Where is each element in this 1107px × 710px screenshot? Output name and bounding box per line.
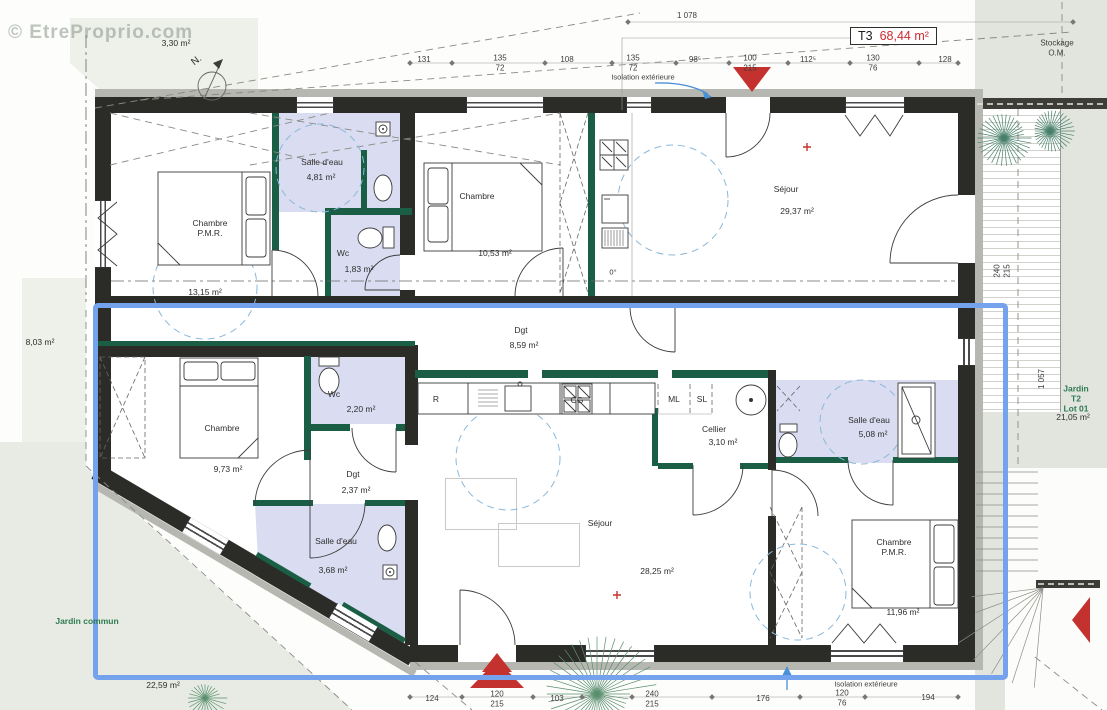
dim-top-0: 131: [417, 55, 430, 65]
appliance-dryer-label: SL: [697, 394, 707, 404]
dim-top-1: 135 72: [493, 53, 506, 72]
stairs: [1005, 470, 1100, 588]
room-name-dgt-lower: Dgt: [346, 469, 359, 479]
dim-bottom-2: 103: [550, 694, 563, 704]
watermark: © EtreProprio.com: [8, 22, 193, 44]
dim-top-2: 108: [560, 55, 573, 65]
dim-bottom-1: 120 215: [490, 689, 503, 708]
unit-outline-t3: [93, 303, 1008, 680]
room-name-sejour-lower: Séjour: [588, 518, 613, 528]
appliance-fridge-label: R: [433, 394, 439, 404]
room-name-wc-lower: Wc: [328, 389, 340, 399]
jardin-t2-label: Jardin T2 Lot 01: [1061, 384, 1092, 415]
dim-top-8: 128: [938, 55, 951, 65]
room-name-dgt-corridor: Dgt: [514, 325, 527, 335]
room-area-dgt-corridor: 8,59 m²: [510, 340, 539, 350]
dim-top-7: 130 76: [866, 53, 879, 72]
room-name-cellier: Cellier: [702, 424, 726, 434]
room-name-sde-right: Salle d'eau: [848, 415, 890, 425]
overall-top-dimension: 1 078: [677, 11, 697, 21]
room-area-wc-upper: 1,83 m²: [345, 264, 374, 274]
dim-bottom-6: 194: [921, 693, 934, 703]
dim-top-5: 100 215: [743, 53, 756, 72]
room-name-sde-upper: Salle d'eau: [301, 157, 343, 167]
unit-type: T3: [858, 29, 873, 43]
room-area-sejour-upper: 29,37 m²: [780, 206, 814, 216]
room-name-sde-lower-left: Salle d'eau: [315, 536, 357, 546]
room-name-sejour-upper: Séjour: [774, 184, 799, 194]
room-name-chambre-mid: Chambre: [460, 191, 495, 201]
dim-bottom-3: 240 215: [645, 689, 658, 708]
unit-area: 68,44 m²: [880, 29, 929, 43]
room-area-sde-right: 5,08 m²: [859, 429, 888, 439]
room-area-dgt-lower: 2,37 m²: [342, 485, 371, 495]
dim-right-lower: 1 057: [1037, 369, 1047, 389]
isolation-bottom-label: Isolation extérieure: [834, 680, 897, 689]
dim-bottom-0: 124: [425, 694, 438, 704]
dim-top-6: 112⁵: [800, 55, 816, 65]
jardin-commun-label: Jardin commun: [55, 616, 118, 626]
room-area-chambre-lower: 9,73 m²: [214, 464, 243, 474]
floor-plan: 3,30 m² N. 1 078 131 135 72 108 135 72 9…: [0, 0, 1107, 710]
appliance-washer-label: ML: [668, 394, 680, 404]
dim-bottom-4: 176: [756, 694, 769, 704]
room-area-cellier: 3,10 m²: [709, 437, 738, 447]
dim-right-upper: 240 215: [992, 264, 1011, 277]
north-compass-icon: [198, 59, 226, 100]
room-area-sde-lower-left: 3,68 m²: [319, 565, 348, 575]
jardin-commun-area-label: 22,59 m²: [146, 680, 180, 690]
dim-top-3: 135 72: [626, 53, 639, 72]
jardin-t2-area-label: 21,05 m²: [1056, 412, 1090, 422]
dim-bottom-5: 120 76: [835, 688, 848, 707]
isolation-top-label: Isolation extérieure: [611, 73, 674, 82]
freezer-temp-label: 0°: [609, 268, 616, 277]
unit-title-box: T3 68,44 m²: [850, 27, 937, 45]
room-name-chambre-lower: Chambre: [205, 423, 240, 433]
room-area-chambre-pmr-lower: 11,96 m²: [887, 607, 920, 617]
stockage-label: Stockage O.M.: [1032, 38, 1082, 57]
room-area-sde-upper: 4,81 m²: [307, 172, 336, 182]
room-area-chambre-mid: 10,53 m²: [478, 248, 512, 258]
room-name-wc-upper: Wc: [337, 248, 349, 258]
area-left-label: 8,03 m²: [26, 337, 55, 347]
room-area-chambre-pmr-upper: 13,15 m²: [188, 287, 222, 297]
appliance-hob-label: CG: [571, 395, 584, 405]
dim-top-4: 98⁵: [689, 55, 701, 65]
room-area-sejour-lower: 28,25 m²: [640, 566, 674, 576]
room-name-chambre-pmr-lower: Chambre P.M.R.: [877, 537, 912, 557]
room-area-wc-lower: 2,20 m²: [347, 404, 376, 414]
room-name-chambre-pmr-upper: Chambre P.M.R.: [193, 218, 228, 238]
